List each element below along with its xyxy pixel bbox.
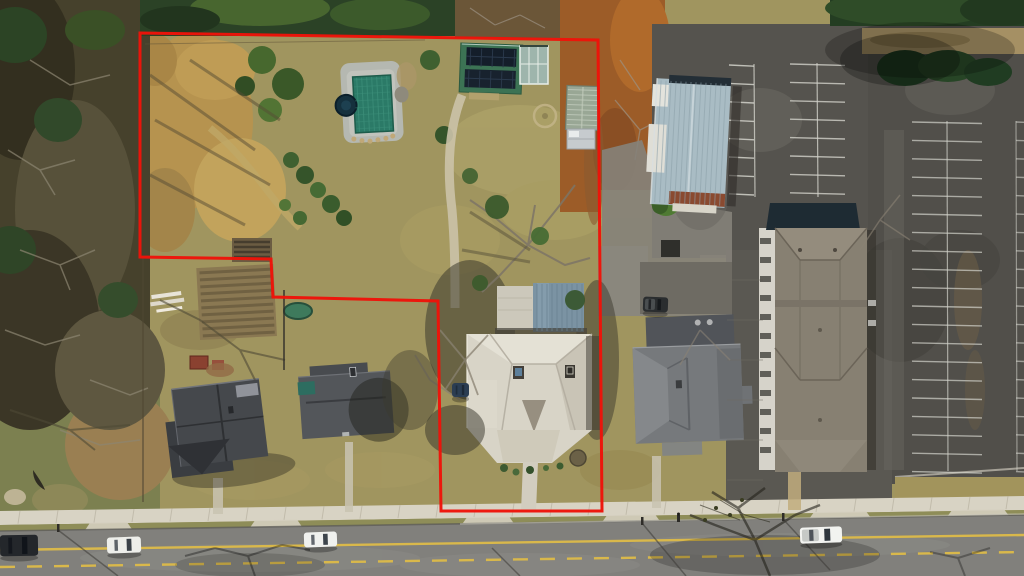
terrain-detail: [325, 452, 435, 488]
terrain-detail: [127, 539, 132, 551]
top-forest: [140, 0, 565, 38]
terrain-detail: [323, 534, 328, 545]
pad-dark-1: [661, 240, 680, 257]
terrain-detail: [567, 367, 573, 374]
terrain-detail: [760, 409, 771, 415]
aerial-photo: [0, 0, 1024, 576]
terrain-detail: [500, 464, 508, 472]
terrain-detail: [472, 275, 488, 291]
trampoline: [284, 303, 312, 319]
terrain-detail: [514, 50, 515, 68]
terrain-detail: [543, 465, 549, 471]
terrain-detail: [515, 368, 522, 376]
terrain-detail: [65, 10, 125, 50]
teal-roof-patch: [298, 381, 316, 395]
terrain-detail: [740, 498, 744, 502]
terrain-detail: [206, 363, 234, 377]
terrain-detail: [565, 290, 585, 310]
car-white-east: [304, 531, 338, 553]
terrain-detail: [190, 356, 208, 369]
terrain-detail: [775, 228, 867, 472]
pickup-white: [800, 526, 843, 549]
terrain-detail: [283, 152, 299, 168]
terrain-detail: [809, 530, 814, 541]
terrain-detail: [818, 418, 822, 422]
terrain-detail: [648, 299, 651, 309]
terrain-detail: [425, 405, 485, 455]
terrain-detail: [336, 210, 352, 226]
car-white-west: [107, 536, 142, 559]
terrain-detail: [760, 257, 771, 263]
terrain-detail: [586, 336, 600, 430]
terrain-detail: [503, 49, 504, 67]
terrain-detail: [833, 248, 837, 252]
terrain-detail: [531, 227, 549, 245]
terrain-detail: [462, 168, 478, 184]
terrain-detail: [350, 367, 357, 376]
terrain-detail: [469, 92, 499, 100]
terrain-detail: [501, 71, 502, 88]
terrain-detail: [742, 386, 753, 404]
terrain-detail: [818, 328, 822, 332]
terrain-detail: [520, 46, 548, 84]
terrain-detail: [657, 299, 661, 310]
terrain-detail: [479, 71, 480, 88]
terrain-detail: [760, 238, 771, 244]
terrain-detail: [760, 333, 771, 339]
terrain-detail: [55, 310, 165, 430]
worn-band: [884, 130, 904, 470]
north-annex-roof: [497, 286, 533, 330]
terrain-detail: [542, 113, 548, 119]
apartment-building: [759, 203, 876, 472]
terrain-detail: [798, 248, 802, 252]
utility-pole: [57, 524, 60, 532]
silver-shed: [567, 129, 595, 149]
terrain-detail: [8, 538, 12, 554]
pedestrian: [677, 515, 680, 522]
terrain-detail: [788, 472, 801, 510]
terrain-detail: [580, 450, 660, 490]
terrain-detail: [468, 70, 469, 87]
terrain-detail: [272, 68, 304, 100]
terrain-detail: [311, 535, 315, 545]
terrain-detail: [775, 300, 867, 307]
terrain-detail: [677, 513, 680, 516]
terrain-detail: [570, 450, 586, 466]
terrain-detail: [322, 195, 340, 213]
terrain-detail: [342, 432, 349, 436]
terrain-detail: [107, 536, 142, 553]
terrain-detail: [569, 131, 579, 137]
terrain-detail: [760, 447, 771, 453]
terrain-detail: [4, 489, 26, 505]
terrain-detail: [296, 166, 314, 184]
terrain-detail: [760, 314, 771, 320]
terrain-detail: [652, 456, 661, 508]
terrain-detail: [662, 441, 702, 455]
terrain-detail: [485, 195, 509, 219]
sunroom: [520, 46, 548, 84]
yard-pole: [283, 290, 285, 370]
terrain-detail: [868, 320, 876, 326]
terrain-detail: [760, 352, 771, 358]
terrain-detail: [714, 506, 718, 510]
parked-car-dark: [0, 535, 38, 562]
terrain-detail: [557, 463, 564, 470]
terrain-detail: [462, 385, 464, 395]
terrain-detail: [481, 49, 482, 67]
north-dark-roof: [766, 203, 860, 230]
pickup-dark-driveway: [643, 297, 669, 318]
utility-pole: [641, 517, 644, 525]
terrain-detail: [345, 442, 353, 512]
terrain-detail: [512, 72, 513, 89]
scene-svg: [0, 0, 1024, 576]
terrain-detail: [456, 386, 458, 395]
terrain-detail: [492, 49, 493, 67]
terrain-detail: [646, 314, 735, 349]
terrain-detail: [717, 348, 744, 439]
terrain-detail: [114, 540, 118, 551]
terrain-detail: [382, 350, 438, 430]
terrain-detail: [293, 211, 307, 225]
terrain-detail: [760, 428, 771, 434]
terrain-detail: [760, 371, 771, 377]
terrain-detail: [650, 535, 880, 575]
utility-pole: [782, 513, 785, 521]
terrain-detail: [0, 535, 38, 557]
terrain-detail: [228, 406, 234, 414]
terrain-detail: [304, 531, 338, 547]
terrain-detail: [279, 199, 291, 211]
terrain-detail: [490, 71, 491, 88]
terrain-detail: [22, 537, 28, 554]
terrain-detail: [824, 529, 830, 541]
terrain-detail: [420, 50, 440, 70]
terrain-detail: [513, 469, 520, 476]
top-right-trees: [825, 0, 1024, 78]
terrain-detail: [400, 553, 640, 576]
terrain-detail: [248, 46, 276, 74]
tree-shadow: [825, 22, 1015, 78]
terrain-detail: [676, 380, 682, 388]
greenhouse: [566, 85, 600, 130]
terrain-detail: [98, 282, 138, 318]
terrain-detail: [310, 182, 326, 198]
terrain-detail: [868, 300, 876, 306]
terrain-detail: [760, 390, 771, 396]
terrain-detail: [452, 383, 469, 397]
terrain-detail: [140, 6, 220, 34]
car-blue-backyard: [452, 383, 469, 403]
terrain-detail: [34, 98, 82, 142]
terrain-detail: [760, 295, 771, 301]
terrain-detail: [497, 430, 560, 462]
terrain-detail: [728, 513, 732, 517]
terrain-detail: [703, 518, 707, 522]
terrain-detail: [526, 466, 534, 474]
dirt-stain: [954, 250, 982, 350]
terrain-detail: [760, 276, 771, 282]
terrain-detail: [470, 48, 471, 66]
